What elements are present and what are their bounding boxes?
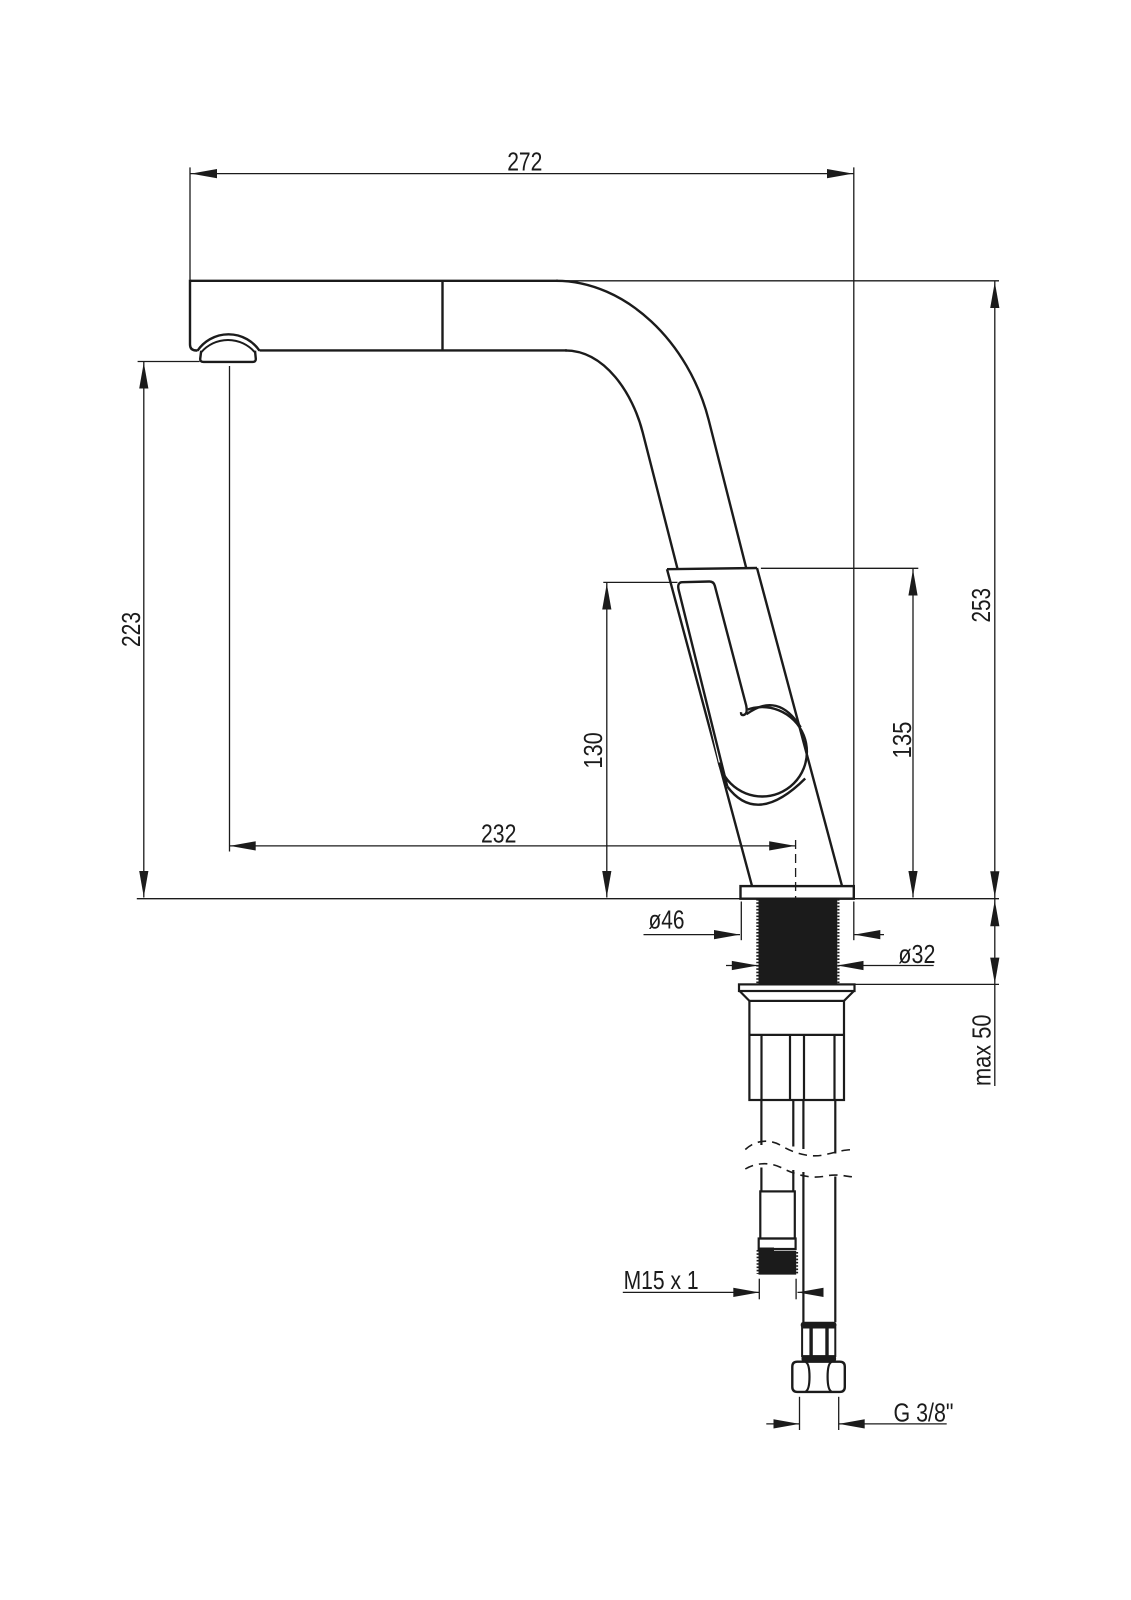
svg-text:ø32: ø32 [898, 939, 935, 969]
svg-text:max 50: max 50 [966, 1015, 996, 1087]
svg-text:M15 x 1: M15 x 1 [624, 1265, 699, 1295]
svg-text:253: 253 [966, 588, 996, 623]
svg-text:G 3/8": G 3/8" [894, 1397, 954, 1427]
svg-text:130: 130 [578, 732, 608, 769]
svg-text:223: 223 [116, 612, 146, 647]
svg-text:272: 272 [507, 147, 542, 177]
svg-text:ø46: ø46 [649, 905, 685, 935]
svg-text:232: 232 [481, 818, 516, 848]
svg-text:135: 135 [887, 722, 917, 759]
